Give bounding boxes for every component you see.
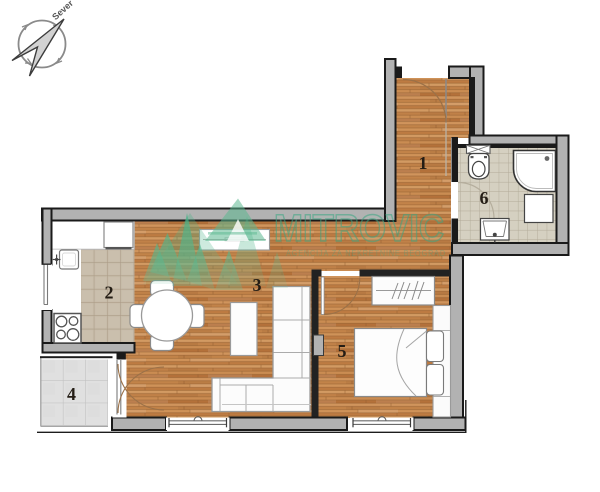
- svg-text:5: 5: [338, 341, 347, 361]
- svg-text:3: 3: [253, 275, 262, 295]
- svg-text:4: 4: [67, 384, 76, 404]
- svg-text:2: 2: [105, 283, 114, 303]
- svg-text:1: 1: [419, 153, 428, 173]
- svg-text:MITROVIC: MITROVIC: [274, 208, 444, 250]
- svg-text:AGENCIJA ZA NEKRETNINE BEOGRAD: AGENCIJA ZA NEKRETNINE BEOGRAD: [286, 249, 446, 258]
- svg-text:6: 6: [480, 188, 489, 208]
